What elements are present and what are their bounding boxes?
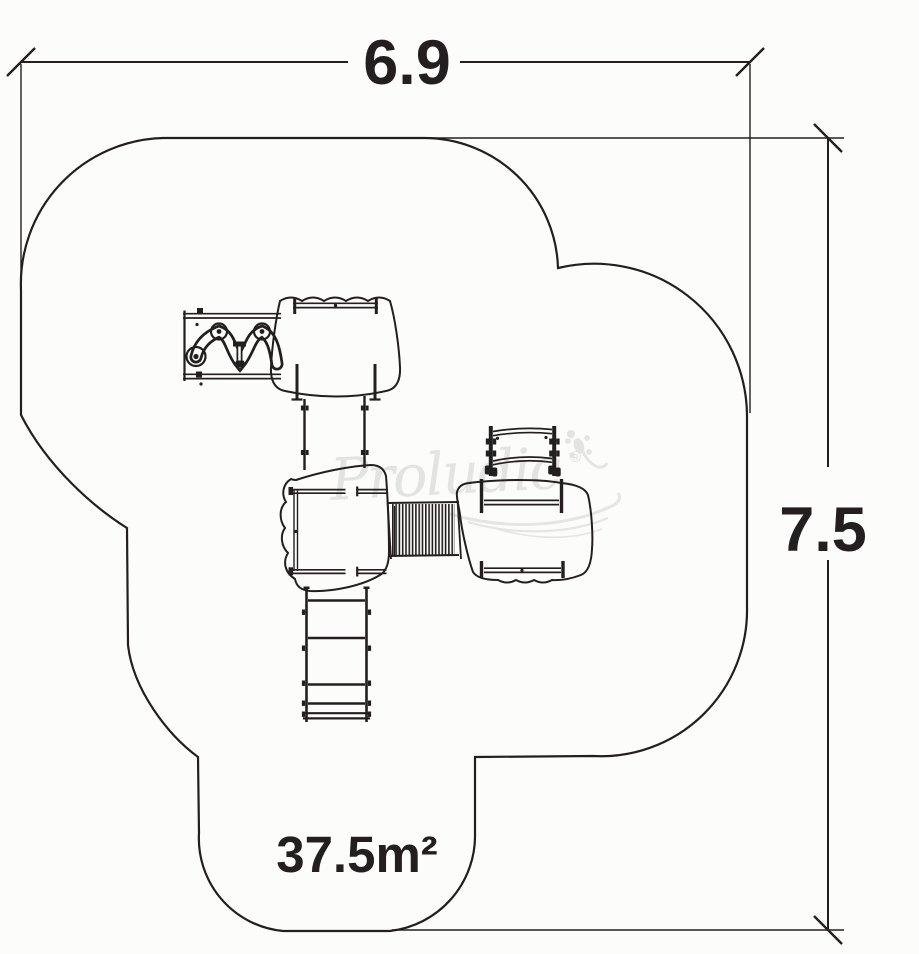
- width-dimension-label: 6.9: [363, 28, 451, 98]
- play-structure: [183, 298, 592, 723]
- width-dimension: 6.9: [7, 28, 764, 413]
- playground-plan-drawing: Proludic ®: [0, 0, 919, 954]
- snake-climber: [183, 308, 281, 386]
- area-label: 37.5m²: [276, 826, 438, 883]
- plan-drawing-svg: Proludic ®: [0, 0, 919, 954]
- height-dimension-label: 7.5: [779, 495, 867, 565]
- safety-area-outline: [21, 138, 747, 931]
- watermark: Proludic ®: [327, 430, 619, 537]
- top-platform: [271, 298, 400, 401]
- access-ladder: [302, 587, 371, 723]
- crawl-tube: [388, 500, 462, 559]
